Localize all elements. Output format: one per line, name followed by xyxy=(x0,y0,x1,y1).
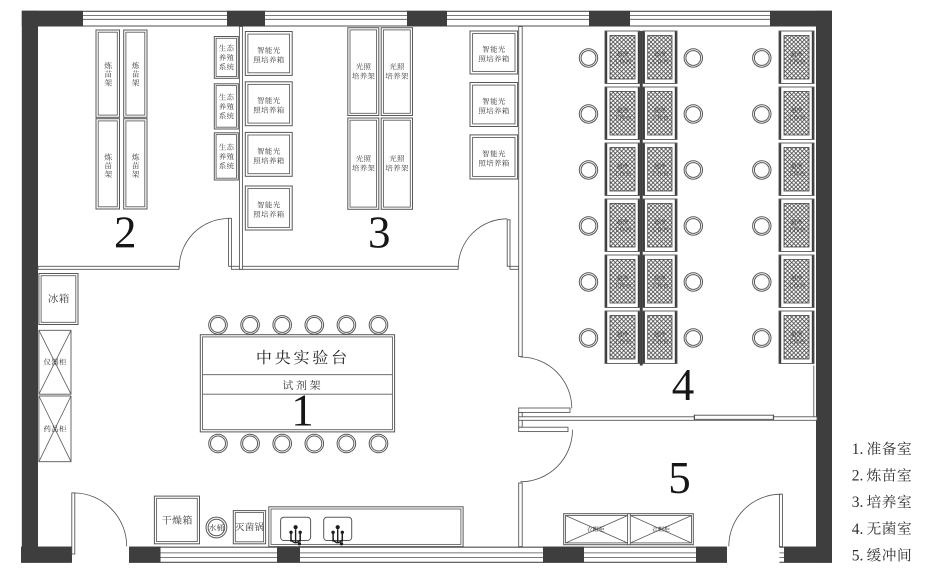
svg-text:4: 4 xyxy=(672,360,695,410)
svg-text:3.: 3. xyxy=(852,494,864,511)
svg-text:5: 5 xyxy=(668,453,691,503)
svg-text:2.: 2. xyxy=(852,468,864,485)
svg-text:1: 1 xyxy=(291,386,314,436)
svg-text:3: 3 xyxy=(368,207,391,257)
svg-text:1.: 1. xyxy=(852,441,864,458)
svg-text:5.: 5. xyxy=(852,547,864,564)
svg-text:4.: 4. xyxy=(852,521,864,538)
svg-text:2: 2 xyxy=(114,208,137,258)
